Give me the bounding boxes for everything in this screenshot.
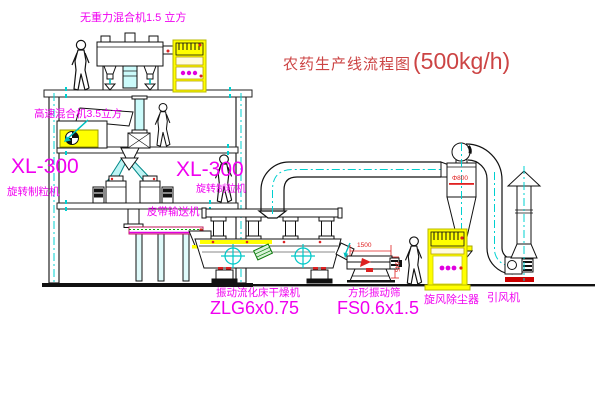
label-granulator-left-name: 旋转制粒机 [7,187,60,198]
label-screen-name: 方形振动筛 [348,288,401,299]
dim-screen-height: 945 [393,262,399,272]
label-belt-conveyor: 皮带输送机 [147,207,200,218]
label-induced-draft-fan: 引风机 [487,293,520,304]
feed-duct [132,96,147,134]
label-granulator-left-model: XL-300 [11,156,79,177]
person-figure [72,40,89,90]
dim-screen-length: 1500 [357,243,371,250]
title-text: 农药生产线流程图 [283,53,411,74]
exhaust-stack [508,166,540,258]
fluid-bed-dryer [189,208,354,283]
diagram-title: 农药生产线流程图 (500kg/h) [283,48,510,75]
gravity-free-mixer [97,33,174,90]
label-granulator-center-name: 旋转制粒机 [196,185,246,195]
label-gravity-free-mixer: 无重力混合机1.5 立方 [80,13,186,24]
label-high-speed-mixer: 高速混合机3.5立方 [34,109,122,120]
ground-line [42,283,595,287]
label-screen-model: FS0.6x1.5 [337,299,419,317]
person-figure [405,237,421,284]
person-figure [155,103,170,146]
dim-cyclone-diameter: Φ800 [452,176,468,183]
control-cabinet [173,40,206,92]
induced-draft-fan [505,257,534,282]
process-flow-diagram: 农药生产线流程图 (500kg/h) 无重力混合机1.5 立方 高速混合机3.5… [0,0,600,403]
control-cabinet [425,229,470,290]
label-cyclone: 旋风除尘器 [424,295,479,306]
label-granulator-center-model: XL-300 [176,159,244,180]
granulator-discharge-duct [124,209,143,228]
label-dryer-name: 振动流化床干燥机 [216,288,300,299]
rotary-granulators [93,176,173,203]
title-capacity: (500kg/h) [413,48,510,75]
label-dryer-model: ZLG6x0.75 [210,299,299,317]
